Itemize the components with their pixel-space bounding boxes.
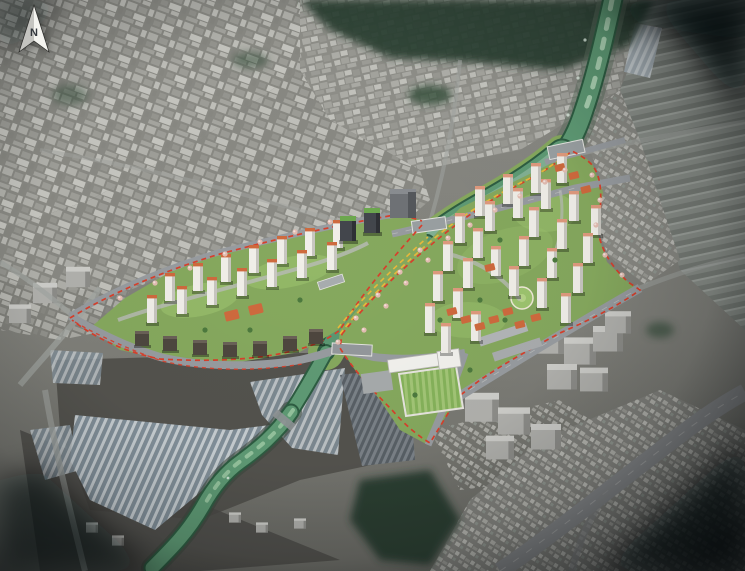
- rendering-canvas: N: [0, 0, 745, 571]
- vignette-overlay: [0, 0, 745, 571]
- compass-north-label: N: [30, 27, 38, 39]
- masterplan-aerial-rendering: N: [0, 0, 745, 571]
